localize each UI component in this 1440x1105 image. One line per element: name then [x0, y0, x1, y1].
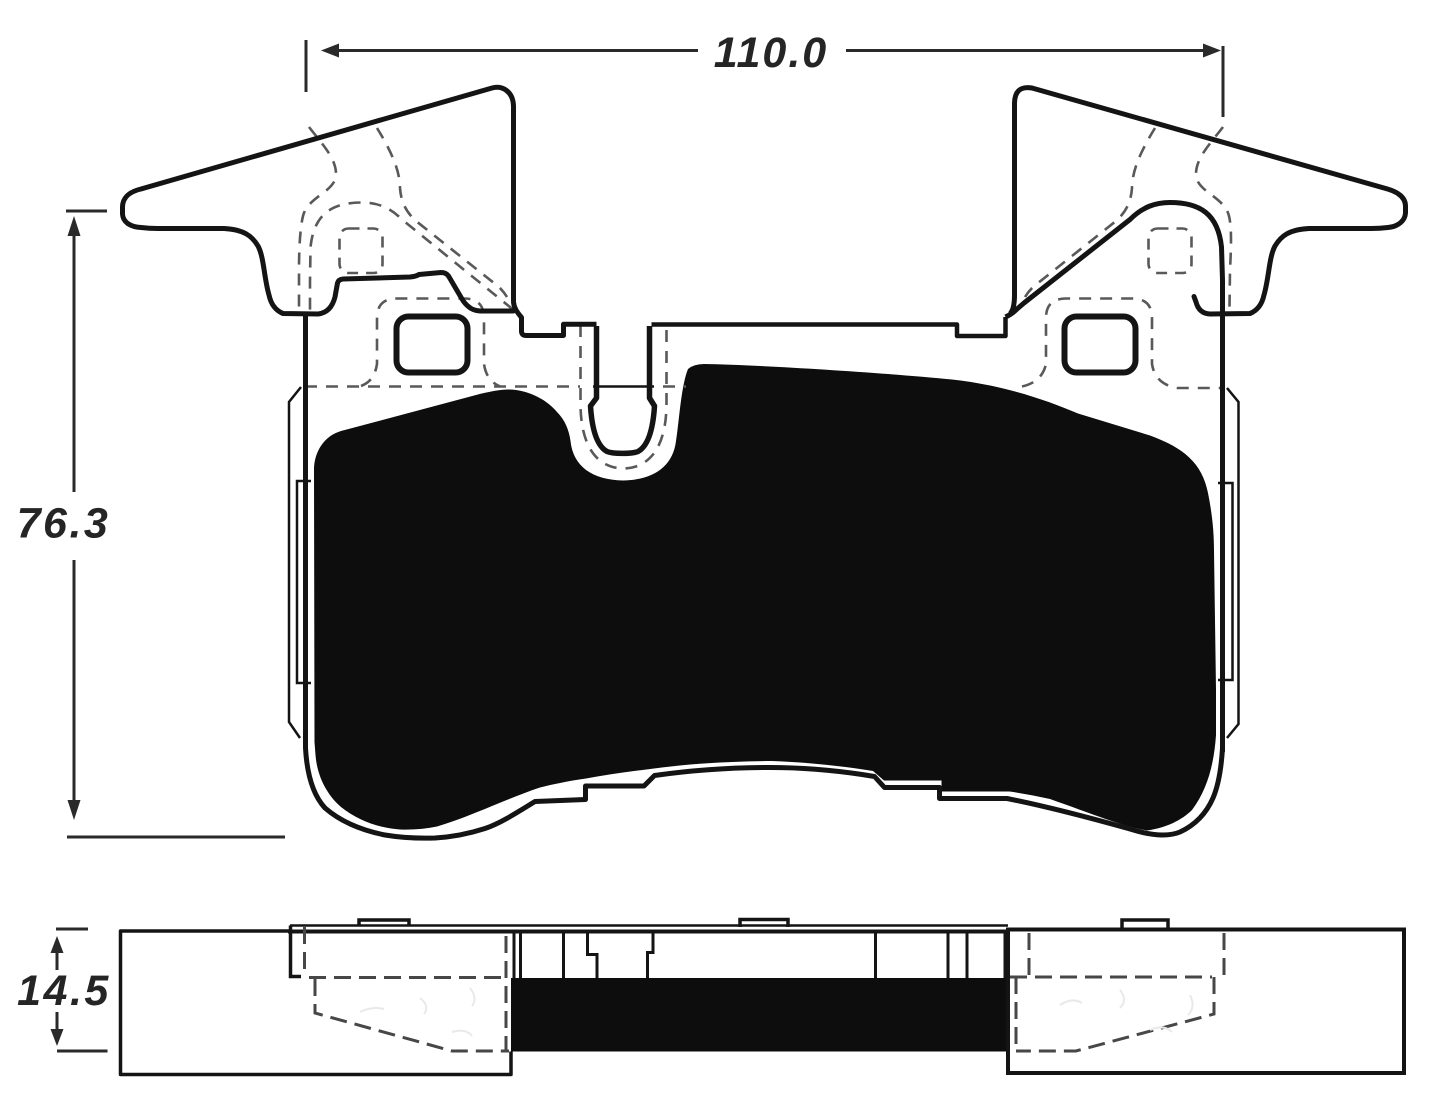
- svg-text:76.3: 76.3: [17, 500, 111, 548]
- svg-text:110.0: 110.0: [714, 29, 828, 77]
- svg-text:14.5: 14.5: [17, 967, 111, 1015]
